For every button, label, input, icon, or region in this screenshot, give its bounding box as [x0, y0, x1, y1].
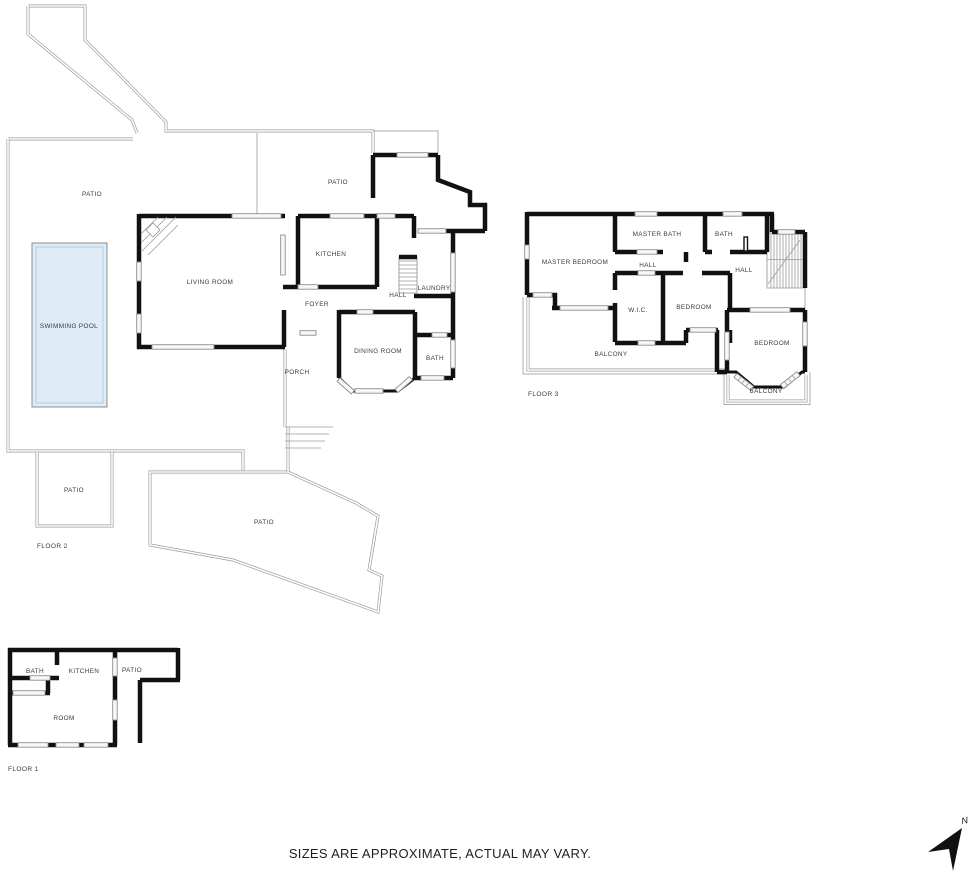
- patio-corner-line: [373, 131, 438, 153]
- room-label: MASTER BEDROOM: [542, 259, 608, 266]
- room-label: HALL: [735, 267, 752, 274]
- room-label: BATH: [26, 668, 44, 675]
- room-label: FOYER: [305, 301, 329, 308]
- room-label: PATIO: [64, 487, 84, 494]
- bath-fixture: [744, 237, 748, 251]
- room-label: PATIO: [328, 179, 348, 186]
- room-label: KITCHEN: [316, 251, 347, 258]
- walkway-outline-inner: [28, 6, 137, 133]
- floor2-plan: PATIO PATIO SWIMMING POOL LIVING ROOM KI…: [8, 6, 485, 612]
- fireplace-hatch: [141, 217, 178, 255]
- room-label: KITCHEN: [69, 668, 100, 675]
- patio-bottom-outline: [150, 472, 382, 612]
- room-label: PORCH: [285, 369, 310, 376]
- north-label: N: [961, 815, 970, 826]
- stairs-landing-line: [767, 288, 805, 310]
- room-label: LIVING ROOM: [187, 279, 233, 286]
- room-label: ROOM: [53, 715, 74, 722]
- room-label: BEDROOM: [676, 304, 711, 311]
- floor1-plan: BATH KITCHEN PATIO ROOM FLOOR 1: [8, 648, 180, 773]
- room-label: PATIO: [122, 667, 142, 674]
- floor1-walls: [8, 648, 180, 745]
- north-arrow: N: [928, 815, 969, 871]
- room-label: PATIO: [254, 519, 274, 526]
- disclaimer-text: SIZES ARE APPROXIMATE, ACTUAL MAY VARY.: [289, 846, 591, 861]
- floorplan-page: PATIO PATIO SWIMMING POOL LIVING ROOM KI…: [0, 0, 979, 880]
- room-label: SWIMMING POOL: [40, 323, 98, 330]
- room-label: HALL: [639, 262, 656, 269]
- room-label: BALCONY: [595, 351, 628, 358]
- room-label: LAUNDRY: [418, 285, 451, 292]
- north-arrow-icon: [928, 828, 962, 871]
- floor3-title: FLOOR 3: [528, 391, 559, 398]
- room-label: W.I.C.: [628, 307, 648, 314]
- floor3-plan: MASTER BEDROOM MASTER BATH BATH HALL HAL…: [523, 212, 810, 405]
- floor1-title: FLOOR 1: [8, 766, 39, 773]
- room-label: BEDROOM: [754, 340, 789, 347]
- room-label: DINING ROOM: [354, 348, 402, 355]
- stairs-floor2: [399, 257, 417, 293]
- floor2-title: FLOOR 2: [37, 543, 68, 550]
- room-label: BATH: [715, 231, 733, 238]
- room-label: HALL: [389, 292, 406, 299]
- room-label: PATIO: [82, 191, 102, 198]
- room-label: BATH: [426, 355, 444, 362]
- room-label: BALCONY: [750, 388, 783, 395]
- porch-steps: [285, 427, 333, 448]
- floorplan-canvas: PATIO PATIO SWIMMING POOL LIVING ROOM KI…: [0, 0, 979, 880]
- room-label: MASTER BATH: [633, 231, 682, 238]
